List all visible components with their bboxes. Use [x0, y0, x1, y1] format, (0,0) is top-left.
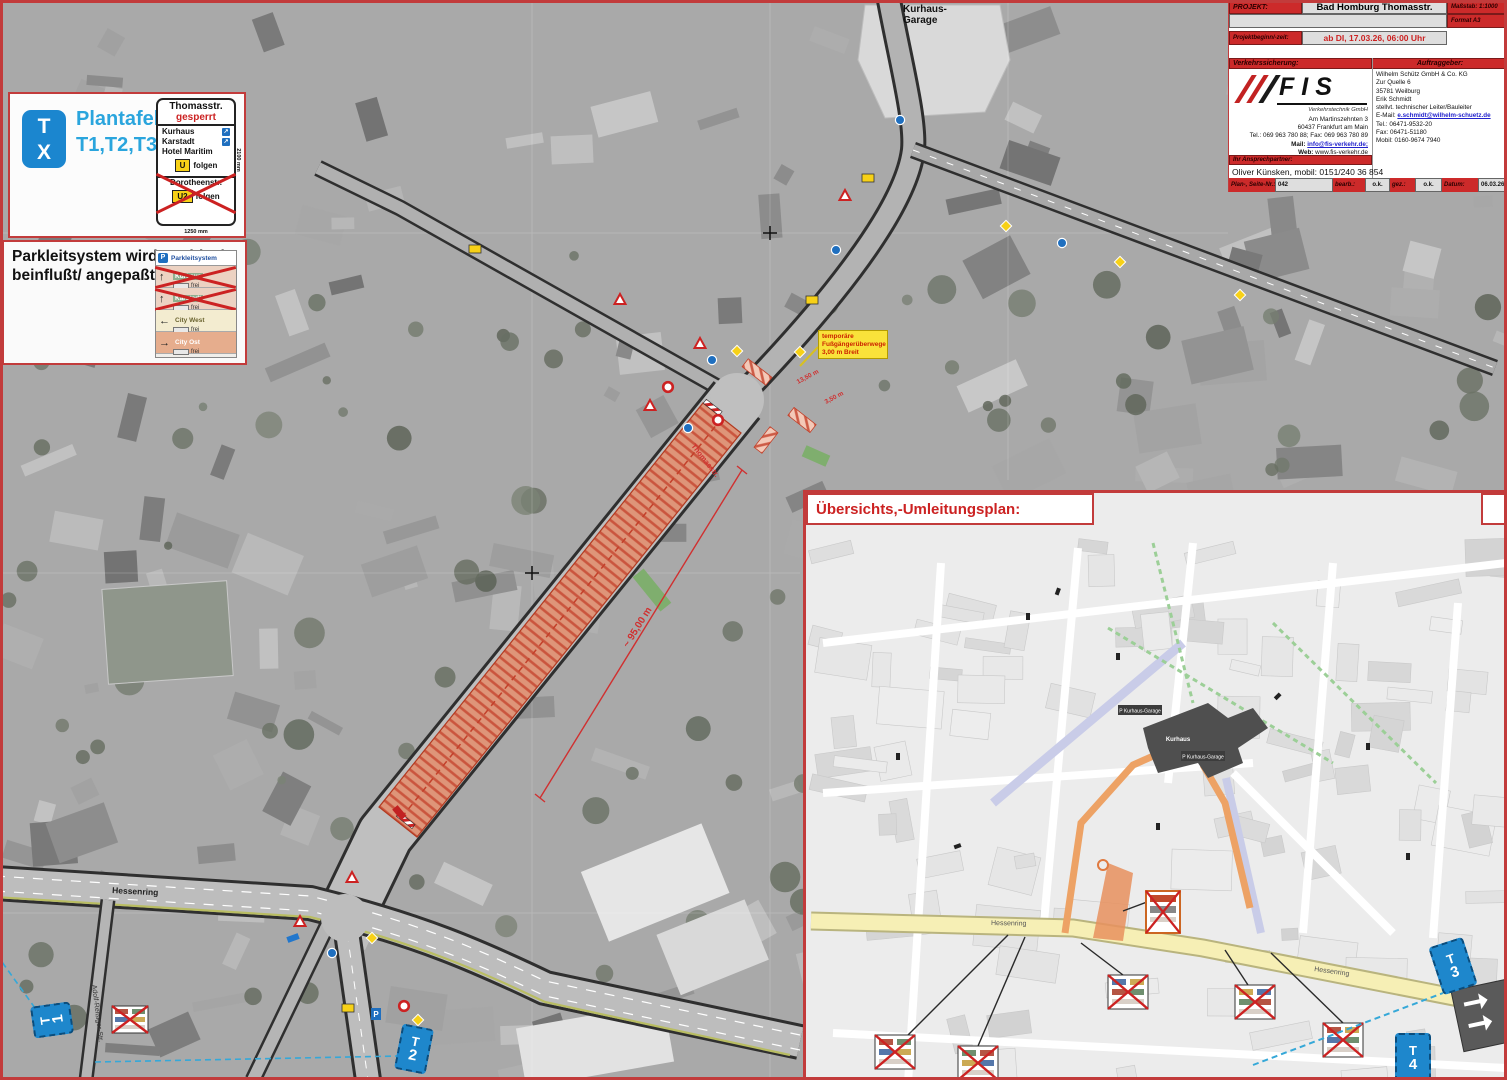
direction-arrow-icon: ↗: [222, 138, 230, 146]
fis-block: FIS Verkehrstechnik GmbH Am Martinszehnt…: [1229, 69, 1372, 155]
detour-sign-icon: [862, 174, 874, 182]
kurhaus-garage-label: Kurhaus- Garage: [903, 4, 947, 26]
fis-subtitle: Verkehrstechnik GmbH: [1308, 107, 1368, 113]
fis-address: Am Martinszehnten 3 60437 Frankfurt am M…: [1250, 116, 1368, 157]
parking-sign-icon: P: [371, 1008, 381, 1020]
project-value-2: [1229, 14, 1447, 28]
svg-text:P Kurhaus-Garage: P Kurhaus-Garage: [1119, 709, 1161, 715]
arrow-right-icon: →: [159, 337, 170, 349]
arrow-up-icon: ↑: [159, 293, 170, 305]
sports-field: [102, 581, 233, 684]
arrow-up-icon: ↑: [159, 271, 170, 283]
mandatory-sign-icon: [1057, 238, 1066, 247]
parkleit-legend: Parkleitsystem wird städtisch beinflußt/…: [2, 240, 247, 365]
inset-svg: Kurhaus P Kurhaus-Garage P Kurhaus-Garag…: [806, 493, 1507, 1080]
inset-title-stub: [1481, 493, 1507, 525]
auftraggeber-label: Auftraggeber:: [1372, 58, 1507, 69]
scale-cell: Maßstab: 1:1000: [1447, 0, 1507, 14]
parkleit-row-citywest: ← City West frei: [156, 310, 236, 332]
svg-text:P Kurhaus-Garage: P Kurhaus-Garage: [1182, 755, 1224, 761]
plan-sheet: ~ 95,00 m 13,50 m 3,50 m Thomasstr. Hess…: [0, 0, 1507, 1080]
title-block: PROJEKT: Bad Homburg Thomasstr. Maßstab:…: [1228, 0, 1507, 192]
detour-sign-icon: [469, 245, 481, 253]
crossed-detour-section: Dorotheenstr. U2folgen: [158, 178, 234, 207]
fis-logo: FIS: [1233, 75, 1367, 105]
parkleit-display-crossed: [112, 1006, 148, 1033]
partner-value: Oliver Künsken, mobil: 0151/240 36 854: [1232, 166, 1505, 178]
parkleit-sign: P Parkleitsystem ↑ Kurhaus frei ↑ Karsta…: [155, 250, 237, 358]
no-entry-sign-icon: [713, 415, 723, 425]
parkleit-row-karstadt: ↑ Karstadt frei: [156, 288, 236, 310]
mandatory-sign-icon: [707, 355, 716, 364]
parkleit-row-cityost: → City Ost frei: [156, 332, 236, 354]
u-detour-badge: U: [175, 159, 191, 172]
plantafel-title: Plantafel:: [76, 108, 166, 131]
temp-crossing-note: temporäre Fußgängerüberwege 3,00 m Breit: [818, 330, 888, 359]
detour-sign-icon: [806, 296, 818, 304]
client-block: Wilhelm Schütz GmbH & Co. KG Zur Quelle …: [1376, 71, 1506, 146]
mandatory-sign-icon: [683, 423, 692, 432]
mandatory-sign-icon: [831, 245, 840, 254]
project-value: Bad Homburg Thomasstr.: [1302, 0, 1447, 14]
closure-status: gesperrt: [160, 112, 232, 123]
inset-title: Übersichts,-Umleitungsplan:: [806, 493, 1094, 525]
direction-arrow-icon: ↗: [222, 128, 230, 136]
closure-sign: Thomasstr. gesperrt Kurhaus↗ Karstadt↗ H…: [156, 98, 236, 226]
closure-street: Thomasstr.: [160, 101, 232, 112]
inset-hessenring-label: Hessenring: [991, 920, 1027, 928]
title-block-footer: Plan-, Seite-Nr.: 042 bearb.: o.k. gez.:…: [1229, 178, 1507, 192]
plan-marker-t4: T4: [1395, 1033, 1431, 1080]
no-entry-sign-icon: [663, 382, 673, 392]
mandatory-sign-icon: [895, 115, 904, 124]
detour-sign-icon: [342, 1004, 354, 1012]
sicherung-label: Verkehrssicherung:: [1229, 58, 1372, 69]
fis-email-link[interactable]: info@fis-verkehr.de;: [1307, 141, 1368, 148]
parkleit-row-kurhaus: ↑ Kurhaus frei: [156, 266, 236, 288]
plan-marker-t1: T1: [30, 1001, 74, 1038]
arrow-left-icon: ←: [159, 315, 170, 327]
no-entry-sign-icon: [399, 1001, 409, 1011]
plantafel-badge: TX: [22, 110, 66, 168]
plantafel-legend: TX Plantafel: T1,T2,T3,T4 Thomasstr. ges…: [8, 92, 246, 238]
client-email-link[interactable]: e.schmidt@wilhelm-schuetz.de: [1397, 112, 1490, 119]
sign-height-dimension: 2100 mm: [235, 148, 241, 172]
svg-text:P: P: [373, 1010, 379, 1019]
partner-label: Ihr Ansprechpartner:: [1229, 155, 1372, 165]
svg-text:Kurhaus: Kurhaus: [1166, 737, 1191, 743]
mandatory-sign-icon: [327, 948, 336, 957]
inset-map: Übersichts,-Umleitungsplan:: [803, 490, 1507, 1080]
parking-p-icon: P: [158, 253, 168, 263]
sign-width-dimension: 1250 mm: [158, 229, 234, 235]
begin-label: Projektbeginn/-zeit:: [1229, 31, 1302, 45]
begin-value: ab DI, 17.03.26, 06:00 Uhr: [1302, 31, 1447, 45]
format-cell: Format A3: [1447, 14, 1507, 28]
project-label: PROJEKT:: [1229, 0, 1302, 14]
